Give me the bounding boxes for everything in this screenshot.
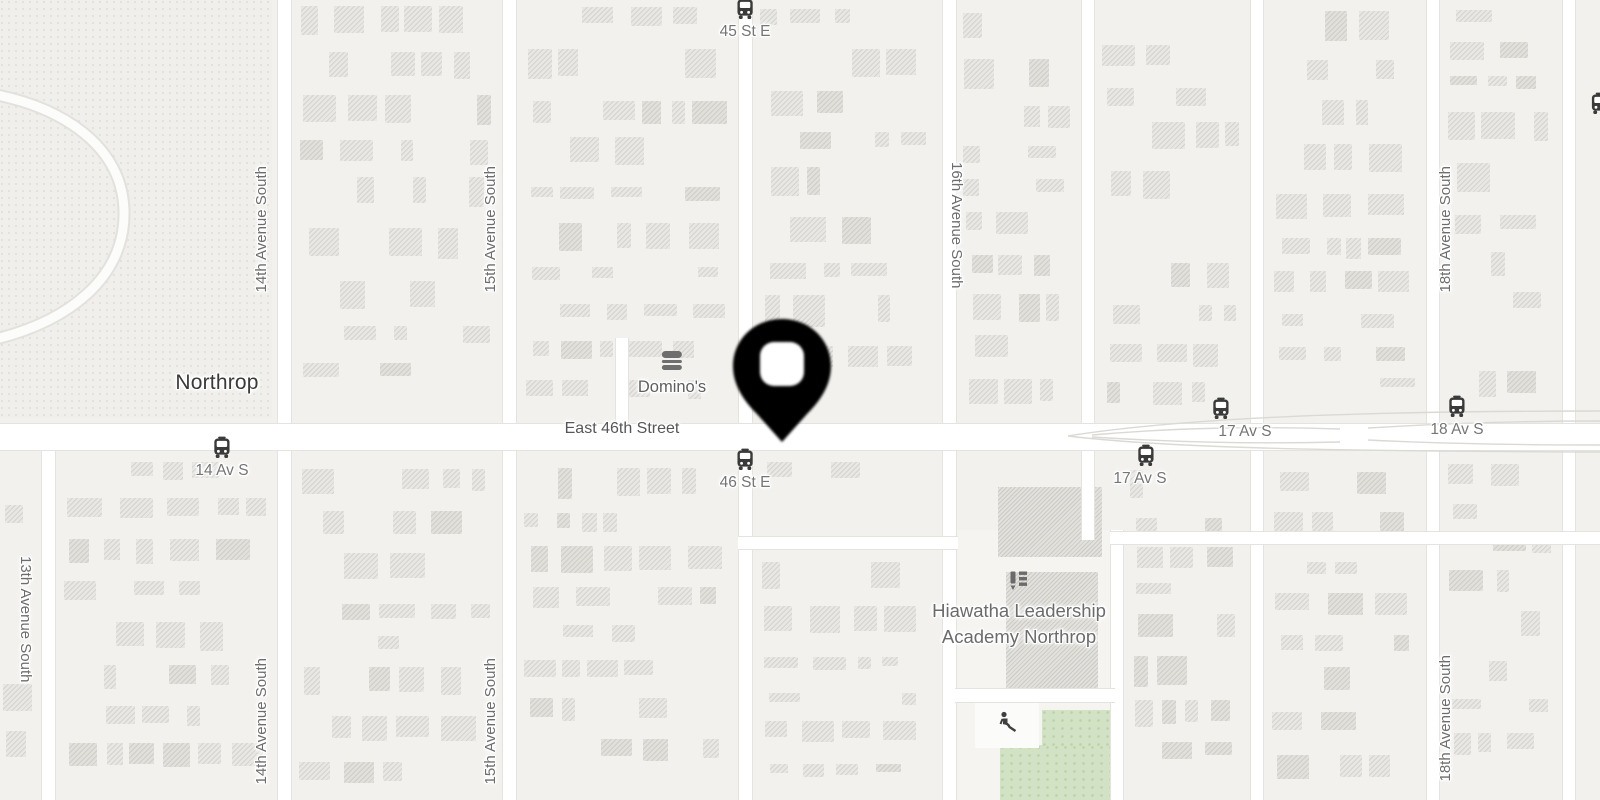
building [790,9,820,23]
location-pin-marker[interactable] [726,314,838,448]
building [1345,271,1372,289]
building [439,6,463,33]
building [1324,347,1341,361]
building [1327,238,1341,255]
building [454,52,470,79]
building [120,498,153,518]
bus-icon [213,436,232,459]
building [767,462,792,477]
building [1211,700,1230,721]
building [67,498,102,517]
building [179,581,200,595]
building [1137,547,1163,568]
building [1356,100,1368,125]
road-13th-avenue [41,448,56,800]
building [576,587,610,606]
road-17th-avenue [1081,0,1095,540]
stop-label: 45 St E [720,23,771,41]
building [1325,11,1347,41]
building [385,95,411,123]
locality-label: Northrop [117,371,317,395]
building [1274,271,1294,292]
building [340,281,365,309]
building [561,341,592,359]
bus-icon [736,448,755,471]
building [848,346,878,367]
building [765,721,787,737]
bus-icon [1137,444,1156,467]
park-green-area [1000,745,1112,800]
building [966,212,982,230]
stop-label: 14 Av S [195,462,248,480]
building [800,132,831,149]
map-canvas[interactable]: 14th Avenue South 15th Avenue South 16th… [0,0,1600,800]
building [156,622,185,648]
building [835,9,850,23]
building [1489,661,1507,681]
building [557,513,570,528]
building [340,140,373,161]
building [1157,656,1187,685]
building [116,622,144,646]
building [362,716,387,741]
building [1346,238,1361,259]
transit-stop-14-av-s[interactable]: 14 Av S [195,436,248,480]
building [129,743,154,764]
building [1029,59,1049,87]
building [344,553,378,579]
building [1394,635,1409,651]
building [1279,347,1306,360]
road-vertical [1562,0,1576,800]
building [1479,371,1496,397]
building [131,462,153,476]
building [1454,733,1471,755]
avenue-label-16th: 16th Avenue South [948,162,965,289]
building [218,498,239,515]
building [1307,562,1326,574]
building [390,553,425,578]
building [1138,614,1173,637]
avenue-label-15th: 15th Avenue South [482,166,499,293]
building [170,539,199,561]
building [658,587,692,605]
building [533,101,551,123]
building [1534,112,1548,141]
building [902,693,916,705]
building [216,539,250,560]
stop-label: 17 Av S [1113,470,1166,488]
building [1328,593,1363,615]
road-campus-east [1110,530,1124,800]
building [393,511,416,534]
building [975,335,1008,357]
stop-label: 17 Av S [1218,423,1271,441]
building [1488,76,1507,86]
building [470,140,488,165]
building [104,539,120,560]
building [1516,76,1536,89]
building [323,511,344,534]
building [334,6,364,33]
building [601,739,632,756]
building [1376,60,1394,79]
building [1143,171,1170,199]
building [332,716,351,738]
building [810,606,840,633]
building [1170,547,1193,568]
bus-icon [1448,395,1467,418]
building [558,468,572,499]
building [693,304,725,318]
building [560,304,590,317]
building [1513,292,1541,308]
building [1136,583,1171,594]
building [399,667,424,692]
building [563,625,593,637]
building [187,706,200,726]
building [1111,171,1131,196]
building [643,739,668,761]
building [1024,106,1040,127]
building [682,468,696,494]
bus-icon [736,0,755,20]
building [831,462,860,478]
building [431,511,462,534]
building [1036,179,1064,192]
building [615,137,644,165]
building [561,546,593,573]
building [685,49,716,78]
transit-stop-46-st-e[interactable]: 46 St E [720,448,771,492]
building [369,667,390,691]
building [1448,464,1473,484]
poi-school-label[interactable]: Hiawatha Leadership Academy Northrop [899,598,1139,650]
building [64,581,96,600]
building [612,625,635,642]
building [842,217,871,244]
building [1323,194,1351,217]
building [1378,271,1409,292]
building [1315,635,1343,651]
building [639,698,667,718]
building [603,101,635,120]
avenue-label-14th-partial: 14th Avenue South [253,658,270,785]
building [1199,305,1212,321]
building [379,604,415,618]
building [1272,712,1302,730]
building [404,6,432,32]
building [348,95,377,121]
building [528,49,552,79]
building [901,132,926,145]
building [401,140,413,161]
building [1046,294,1059,321]
building [1478,733,1491,752]
building [688,546,722,569]
building [1171,263,1190,287]
building [803,764,824,777]
building [1107,382,1120,403]
building [471,604,490,618]
building [309,228,339,256]
building [344,762,374,783]
building [642,101,661,124]
building [1452,699,1481,709]
building [1449,570,1483,591]
building [646,223,670,249]
building [824,263,840,277]
building [1185,700,1198,722]
building [672,101,685,124]
building [380,363,411,376]
building [302,469,334,494]
building [1369,144,1402,172]
building [1529,699,1548,712]
building [1134,656,1148,687]
building [969,379,998,404]
building [887,346,912,366]
building [802,721,834,742]
building [136,539,153,564]
building [1453,504,1477,519]
road-16th-avenue [942,0,957,800]
building [604,546,632,571]
building [1280,472,1309,491]
building [582,513,597,532]
building [1225,122,1239,146]
building [817,91,843,113]
building [998,255,1022,275]
building [410,281,435,307]
building [770,263,806,279]
building [3,684,32,711]
building [1380,378,1415,387]
campus-path [955,688,1115,703]
building [1048,106,1070,128]
building [344,326,376,340]
building [532,267,560,280]
building [703,739,719,758]
building [673,7,697,24]
building [1102,45,1135,66]
building [1359,11,1389,40]
building [972,255,993,273]
building [1368,238,1401,255]
transit-stop-18-av-s[interactable]: 18 Av S [1430,395,1483,439]
stop-label: 18 Av S [1430,421,1483,439]
building [524,660,556,677]
building [413,177,426,203]
building [876,764,901,772]
building [875,132,889,147]
building [647,468,671,494]
building [381,6,399,32]
building [562,660,580,677]
school-label-line1: Hiawatha Leadership [899,598,1139,624]
building [1521,611,1540,636]
building [1224,305,1236,321]
building [303,95,336,122]
building [963,146,980,163]
school-icon[interactable] [1008,570,1028,591]
building [531,187,553,197]
building [472,469,485,491]
building [883,721,916,740]
park-green-area [1042,710,1112,746]
building [104,665,116,689]
building [996,212,1028,234]
building [142,706,169,723]
building [441,667,461,695]
building [1500,42,1528,58]
building [1321,712,1356,730]
building [1457,163,1490,192]
building [562,698,575,721]
building [836,764,858,775]
building [1450,76,1477,85]
bus-icon [1212,397,1231,420]
building [1162,700,1176,724]
building [5,505,23,523]
building [533,341,549,356]
transit-stop-45-st-e[interactable]: 45 St E [720,0,771,41]
building [1481,112,1515,139]
building [524,513,538,527]
building [1455,215,1481,234]
building [533,587,559,608]
building [1507,733,1534,749]
building [441,716,476,741]
building [402,469,429,489]
building [477,95,491,125]
building [1113,305,1140,324]
building [1497,570,1509,592]
building [771,167,799,196]
building [764,606,792,631]
building [1193,344,1218,367]
building [1136,518,1157,531]
building [69,743,97,766]
building [431,604,456,619]
building [1282,238,1310,254]
building [1277,755,1309,779]
building [624,660,653,675]
building [383,762,402,781]
building [163,743,190,767]
building [1368,194,1404,215]
building [300,140,323,160]
building [1004,379,1032,404]
building [644,304,677,316]
building [692,101,727,124]
avenue-label-18th: 18th Avenue South [1437,166,1454,293]
building [963,179,979,196]
building [558,49,578,76]
building [443,469,460,488]
building [1276,194,1307,219]
building [1110,344,1142,362]
building [886,49,916,75]
building [530,698,553,717]
building [1369,755,1390,777]
building [107,743,123,765]
building [1019,294,1040,322]
road-15th-avenue [502,0,517,800]
building [570,137,599,162]
building [611,187,642,197]
building [878,295,890,322]
building [163,462,183,480]
building [299,762,330,780]
building [1207,263,1229,288]
building [69,539,89,563]
building [246,498,266,516]
road-horizontal [1110,531,1600,545]
building [603,513,617,532]
building [1034,255,1050,276]
bus-icon-partial[interactable] [1590,92,1600,115]
building [1448,112,1475,140]
building [1135,700,1153,727]
building [790,217,826,242]
building [1357,472,1386,494]
building [587,660,618,677]
building [342,604,370,620]
building [852,49,880,77]
building [1507,371,1536,393]
avenue-label-14th: 14th Avenue South [253,166,270,293]
building [770,764,788,773]
building [562,380,588,396]
building [1307,60,1328,80]
building [1340,755,1362,777]
building [1450,42,1484,60]
poi-dominos[interactable]: Domino's [638,350,706,397]
building [685,187,720,201]
building [1491,252,1505,276]
building [689,223,719,249]
building [1322,100,1344,125]
building [764,657,798,668]
building [134,581,164,595]
building [169,665,196,684]
building [771,91,803,116]
building [769,693,800,702]
building [1176,88,1206,106]
playground-slide-icon[interactable] [996,710,1020,734]
building [762,562,780,589]
building [700,587,716,604]
transit-stop-17-av-s-north[interactable]: 17 Av S [1170,397,1271,441]
building [438,228,458,259]
building [858,657,871,669]
building [1040,379,1053,401]
building [813,657,846,670]
building [304,667,320,695]
building [1157,344,1187,362]
road-horizontal [738,536,958,550]
building [200,622,223,651]
building [592,267,613,278]
building [1491,464,1519,486]
building [167,498,199,516]
building [607,304,627,320]
building [1334,144,1352,170]
building [964,59,994,89]
building [1304,144,1326,170]
transit-stop-17-av-s-south[interactable]: 17 Av S [1125,444,1166,488]
